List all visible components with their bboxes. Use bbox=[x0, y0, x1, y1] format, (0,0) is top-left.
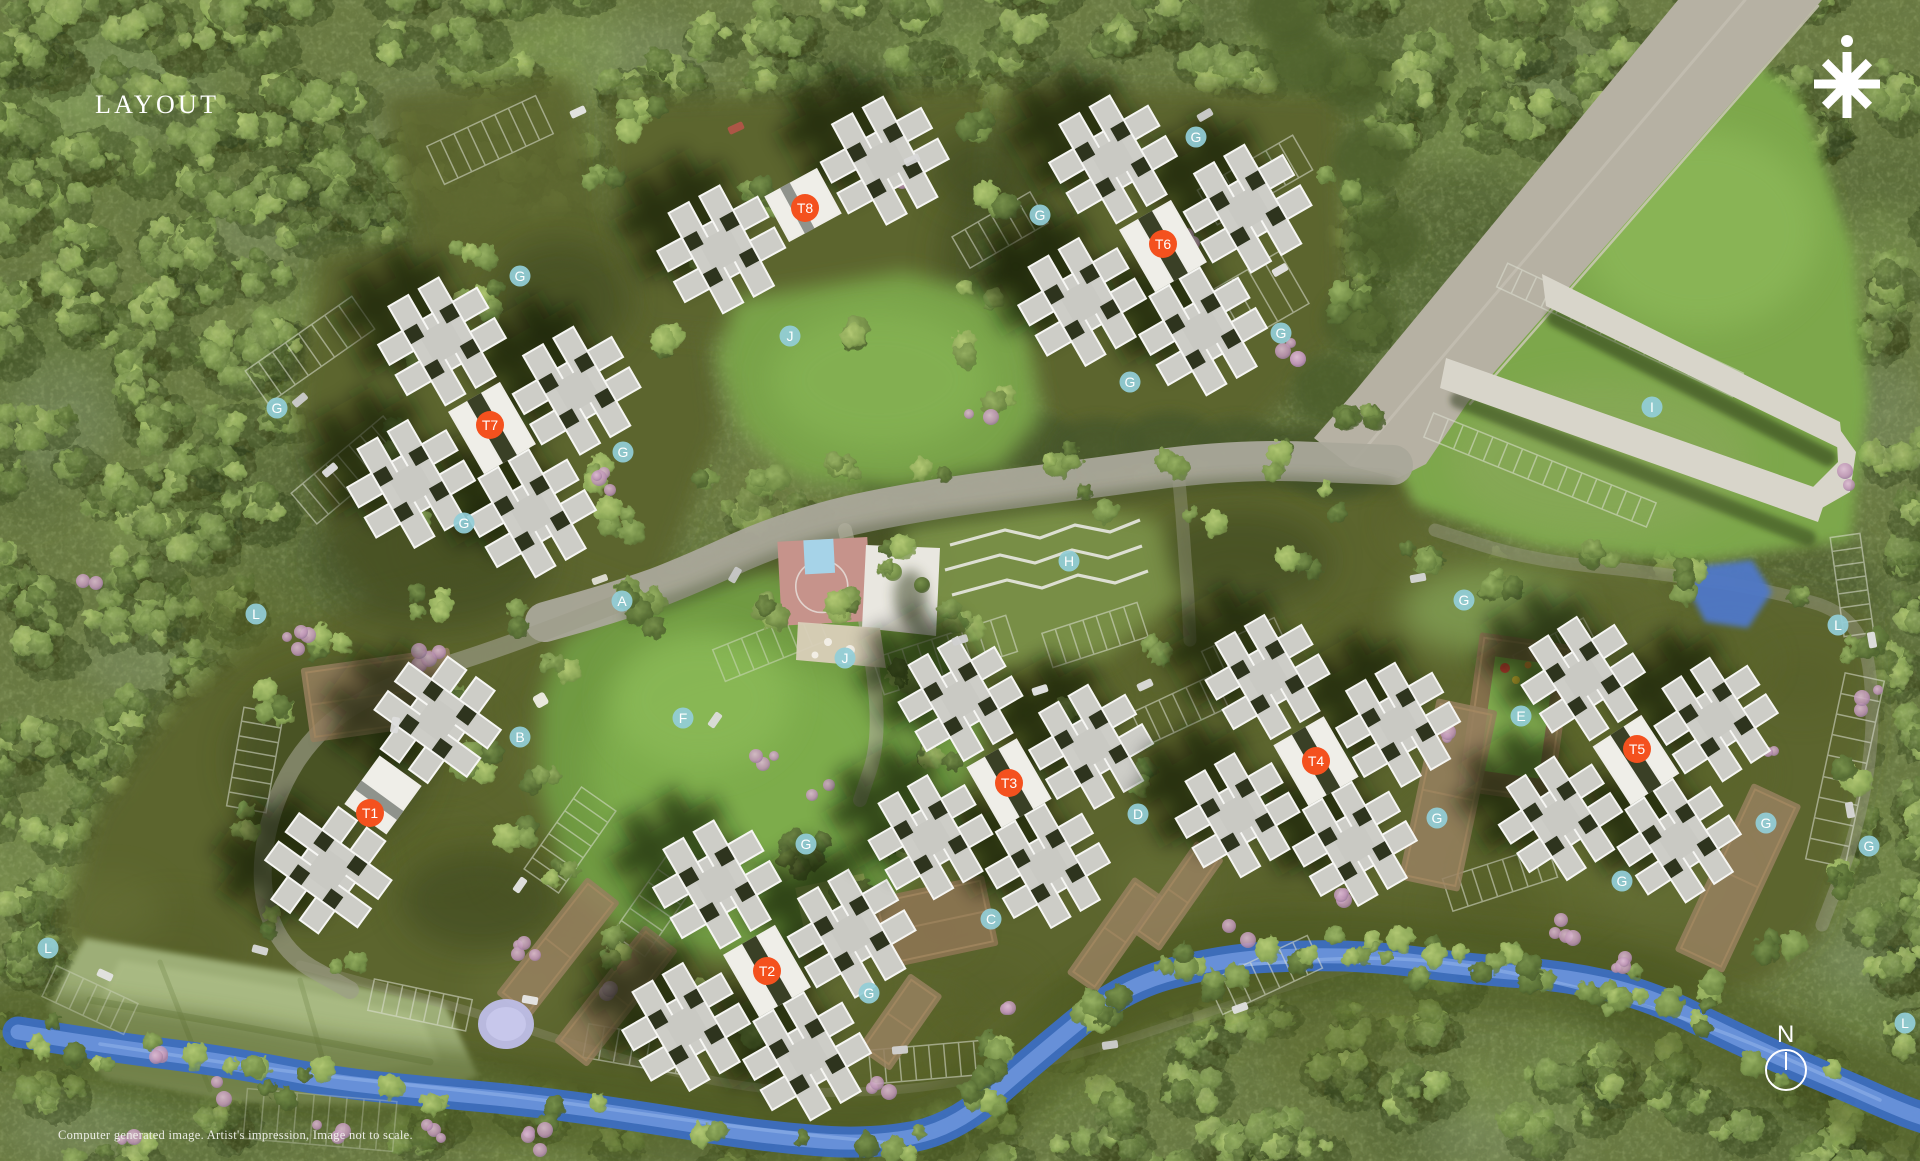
svg-text:T1: T1 bbox=[362, 805, 379, 821]
svg-text:T6: T6 bbox=[1155, 236, 1172, 252]
svg-text:G: G bbox=[1276, 325, 1287, 341]
svg-text:G: G bbox=[1617, 873, 1628, 889]
svg-text:D: D bbox=[1133, 806, 1143, 822]
svg-text:G: G bbox=[618, 444, 629, 460]
svg-text:L: L bbox=[1834, 617, 1842, 633]
svg-text:T4: T4 bbox=[1308, 753, 1325, 769]
svg-text:T8: T8 bbox=[797, 200, 814, 216]
svg-text:G: G bbox=[1035, 207, 1046, 223]
svg-text:E: E bbox=[1516, 708, 1525, 724]
svg-text:I: I bbox=[1650, 399, 1654, 415]
svg-text:G: G bbox=[864, 985, 875, 1001]
svg-text:T7: T7 bbox=[482, 417, 499, 433]
svg-text:G: G bbox=[515, 268, 526, 284]
svg-text:L: L bbox=[1901, 1015, 1909, 1031]
svg-text:LAYOUT: LAYOUT bbox=[95, 90, 219, 119]
svg-text:G: G bbox=[801, 836, 812, 852]
svg-text:B: B bbox=[515, 729, 524, 745]
svg-text:H: H bbox=[1064, 553, 1074, 569]
svg-text:G: G bbox=[1191, 129, 1202, 145]
svg-text:L: L bbox=[252, 606, 260, 622]
svg-text:T3: T3 bbox=[1001, 775, 1018, 791]
svg-text:L: L bbox=[44, 940, 52, 956]
svg-text:J: J bbox=[787, 328, 794, 344]
svg-text:A: A bbox=[617, 593, 627, 609]
svg-text:T5: T5 bbox=[1629, 741, 1646, 757]
svg-text:G: G bbox=[1125, 374, 1136, 390]
svg-text:G: G bbox=[459, 515, 470, 531]
svg-text:Computer generated image. Arti: Computer generated image. Artist's impre… bbox=[58, 1128, 413, 1142]
svg-text:G: G bbox=[272, 400, 283, 416]
svg-text:G: G bbox=[1761, 815, 1772, 831]
svg-text:N: N bbox=[1777, 1021, 1794, 1048]
svg-text:T2: T2 bbox=[759, 963, 776, 979]
svg-text:C: C bbox=[986, 911, 996, 927]
svg-text:G: G bbox=[1432, 810, 1443, 826]
svg-text:G: G bbox=[1459, 592, 1470, 608]
svg-text:G: G bbox=[1864, 838, 1875, 854]
svg-text:F: F bbox=[679, 710, 688, 726]
svg-text:J: J bbox=[842, 650, 849, 666]
